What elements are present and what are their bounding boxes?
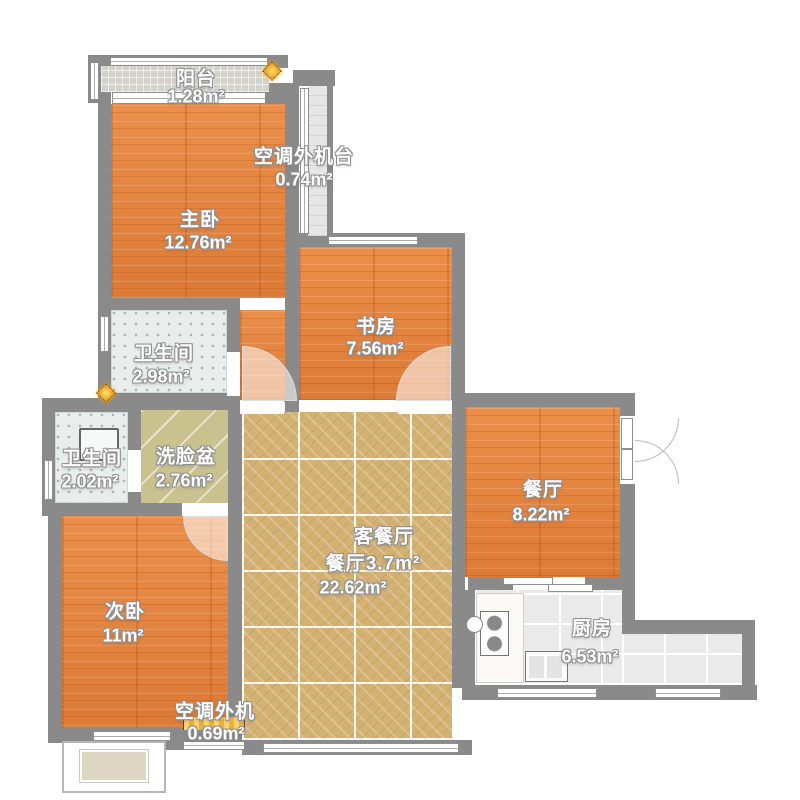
label-master-bedroom-area: 12.76m² [164, 233, 231, 254]
window [93, 731, 171, 741]
label-ac-platform-bottom-name: 空调外机 [175, 697, 255, 724]
kitchen-sliding-door-panel[interactable] [548, 584, 593, 592]
label-dining-area: 8.22m² [512, 505, 569, 526]
label-ac-platform-bottom-area: 0.69m² [187, 724, 244, 745]
label-ac-platform-top-name: 空调外机台 [254, 142, 354, 169]
label-washbasin-area: 2.76m² [155, 471, 212, 492]
label-bathroom-main-name: 卫生间 [134, 339, 194, 366]
room-floor-kitchen-extension[interactable] [622, 634, 742, 685]
window [44, 460, 53, 500]
label-living-dining-name: 客餐厅 [354, 522, 414, 549]
kitchen-sliding-door-panel[interactable] [503, 577, 553, 585]
wall [285, 83, 299, 412]
label-study-area: 7.56m² [346, 339, 403, 360]
label-second-bedroom-name: 次卧 [105, 597, 145, 624]
label-living-dining-area: 22.62m² [319, 578, 386, 599]
wall [452, 590, 475, 688]
label-dining-name: 餐厅 [523, 475, 563, 502]
doorway-second-bedroom [182, 503, 228, 516]
window [263, 743, 459, 753]
window [100, 316, 109, 352]
doorway-master-bedroom [240, 400, 284, 414]
doorway-study [398, 400, 452, 414]
label-dining-nook: 餐厅3.7m² [326, 549, 421, 576]
floor-plan-canvas[interactable]: 阳台 1.28m² 空调外机台 0.74m² 主卧 12.76m² 书房 7.5… [0, 0, 800, 800]
door-swing-entry-bottom [635, 440, 679, 484]
window [655, 688, 721, 698]
wall [452, 393, 635, 407]
water-heater[interactable] [466, 616, 483, 633]
entry-door-leaf[interactable] [621, 449, 633, 480]
wall [48, 510, 62, 743]
room-floor-living-dining[interactable] [242, 412, 452, 740]
label-bathroom-small-name: 卫生间 [62, 444, 122, 471]
label-bathroom-small-area: 2.02m² [61, 472, 118, 493]
label-kitchen-area: 6.53m² [561, 647, 618, 668]
bay-window-sill [80, 750, 148, 782]
cooktop[interactable] [480, 611, 509, 656]
label-second-bedroom-area: 11m² [102, 626, 143, 647]
wall [452, 400, 465, 590]
window [497, 688, 597, 698]
wall [98, 297, 240, 310]
label-master-bedroom-name: 主卧 [180, 205, 220, 232]
label-bathroom-main-area: 2.98m² [132, 367, 189, 388]
label-ac-platform-top-area: 0.74m² [275, 170, 332, 191]
window [90, 62, 99, 100]
wall [228, 410, 242, 702]
label-kitchen-name: 厨房 [572, 614, 612, 641]
doorway-bathroom-main [227, 352, 240, 396]
doorway-bathroom-small [128, 450, 141, 492]
wall [620, 620, 755, 634]
label-study-name: 书房 [356, 312, 396, 339]
window [328, 236, 418, 245]
wall [293, 70, 335, 86]
label-balcony-area: 1.28m² [167, 87, 224, 108]
label-washbasin-name: 洗脸盆 [156, 442, 216, 469]
room-floor-master-bedroom[interactable] [111, 104, 285, 298]
wall [452, 233, 465, 407]
entry-door-leaf[interactable] [621, 418, 633, 449]
wall [98, 88, 111, 400]
